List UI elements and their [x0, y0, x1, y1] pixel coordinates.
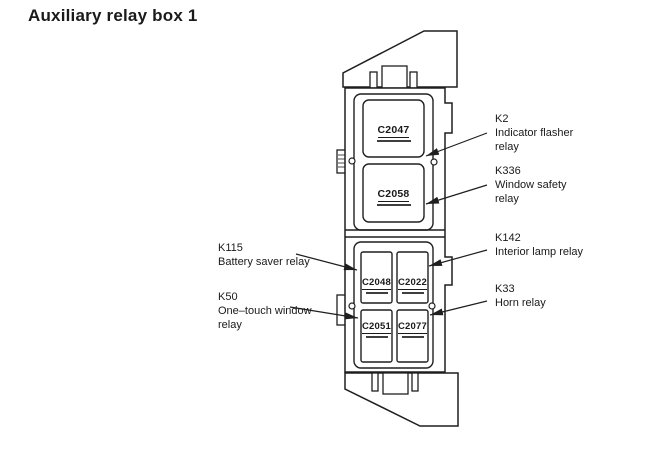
relay-part-number-smudge: [377, 204, 411, 206]
relay-label-c2051: C2051: [361, 316, 392, 338]
relay-label-c2077: C2077: [397, 316, 428, 338]
relay-id: C2077: [398, 321, 427, 334]
callout-text: One–touch window: [218, 304, 312, 318]
callout-text: Indicator flasher: [495, 126, 573, 140]
callout-text: Interior lamp relay: [495, 245, 583, 259]
callout-code: K142: [495, 231, 583, 245]
relay-label-c2058: C2058: [363, 184, 424, 206]
callout-k2: K2 Indicator flasher relay: [495, 112, 573, 154]
top-tab-right: [410, 72, 417, 88]
mount-hole-upper-right: [431, 159, 437, 165]
bottom-connector: [383, 373, 408, 394]
callout-text: relay: [218, 318, 312, 332]
bottom-tab-right: [412, 373, 418, 391]
relay-part-number-smudge: [377, 140, 411, 142]
callout-text: relay: [495, 140, 573, 154]
relay-part-number-smudge: [366, 336, 388, 338]
mount-hole-lower-right: [429, 303, 435, 309]
top-tab-left: [370, 72, 377, 88]
callout-text: Horn relay: [495, 296, 546, 310]
callout-k336: K336 Window safety relay: [495, 164, 567, 206]
callout-code: K33: [495, 282, 546, 296]
mount-hole-upper-left: [349, 158, 355, 164]
callout-code: K50: [218, 290, 312, 304]
bottom-tab-left: [372, 373, 378, 391]
callout-text: relay: [495, 192, 567, 206]
callout-text: Window safety: [495, 178, 567, 192]
relay-box-diagram: [0, 0, 650, 450]
relay-part-number-smudge: [402, 292, 424, 294]
callout-k142: K142 Interior lamp relay: [495, 231, 583, 259]
callout-k115: K115 Battery saver relay: [218, 241, 310, 269]
callout-code: K336: [495, 164, 567, 178]
relay-part-number-smudge: [402, 336, 424, 338]
callout-k50: K50 One–touch window relay: [218, 290, 312, 332]
relay-label-c2047: C2047: [363, 120, 424, 142]
callout-code: K2: [495, 112, 573, 126]
callout-text: Battery saver relay: [218, 255, 310, 269]
relay-id: C2047: [378, 124, 410, 138]
callout-k33: K33 Horn relay: [495, 282, 546, 310]
relay-id: C2048: [362, 277, 391, 290]
callout-code: K115: [218, 241, 310, 255]
relay-label-c2048: C2048: [361, 272, 392, 294]
page: Auxiliary relay box 1: [0, 0, 650, 450]
relay-id: C2058: [378, 188, 410, 202]
mount-hole-lower-left: [349, 303, 355, 309]
relay-part-number-smudge: [366, 292, 388, 294]
top-connector: [382, 66, 407, 88]
relay-label-c2022: C2022: [397, 272, 428, 294]
relay-id: C2051: [362, 321, 391, 334]
relay-id: C2022: [398, 277, 427, 290]
